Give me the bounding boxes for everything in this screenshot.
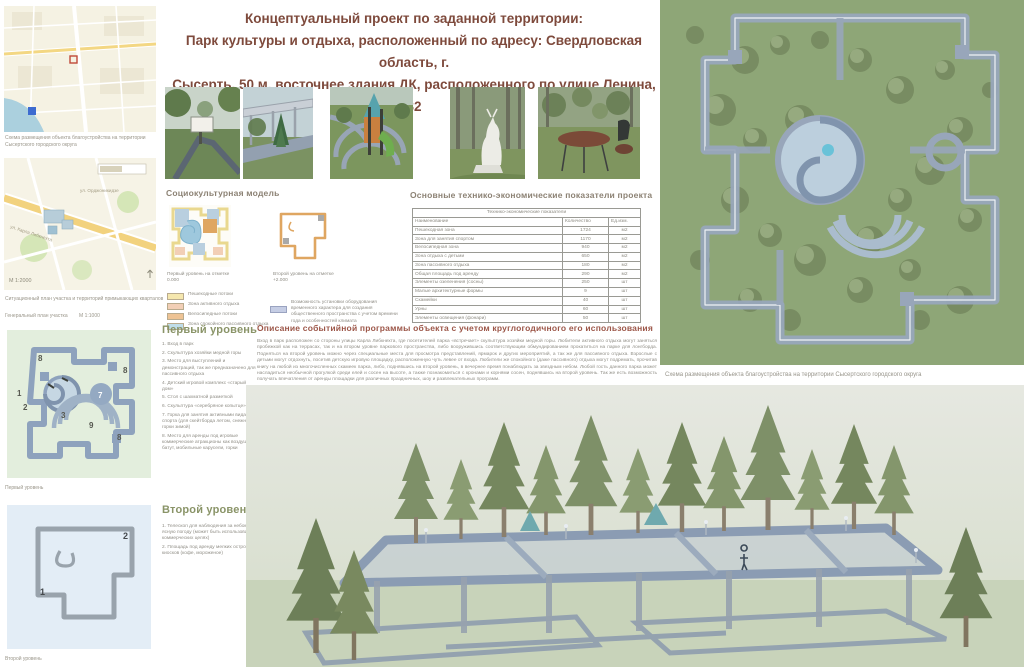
plan2-marker: 1 [40,587,45,597]
legend-swatch-pedestrian [167,293,184,300]
legend2-label: Возможность установки оборудования време… [291,300,398,325]
genplan-level1-diagram: 1 2 3 7 8 8 8 9 [4,328,154,480]
table-row: Элементы освещения (фонари)50шт [413,314,641,323]
aerial-site-render [660,0,1024,365]
plan1-marker: 3 [61,411,66,420]
model-level2-label: Второй уровень на отметке +2.000 [273,272,343,284]
plan1-marker: 9 [89,421,94,430]
genplan-scale: М 1:1000 [79,313,100,319]
tep-table: Технико-экономические показатели Наимено… [412,208,641,323]
render-table-and-chairs [538,87,640,179]
table-row: Малые архитектурные формы9шт [413,288,641,297]
table-row: Велосипедная зона940м2 [413,244,641,253]
table-row: Зона пассивного отдыха180м2 [413,261,641,270]
city-overview-map [4,6,156,132]
plan1-marker: 2 [23,403,28,412]
plan1-marker: 8 [117,433,122,442]
list-item: 8. Место для аренды под игровые коммерче… [162,434,257,453]
table-row: Элементы озеленения (сосны)250шт [413,279,641,288]
plan1-marker: 8 [38,354,43,363]
overview-map-caption: Схема размещения объекта благоустройства… [5,135,153,148]
list-item: 5. Стол с шахматной разметкой [162,395,257,401]
tep-col: Количество [563,217,609,226]
list-item: 7. Горка для занятия активными видами сп… [162,413,257,432]
list-item: 4. Детский игровой комплекс «старый дом» [162,381,257,393]
tep-heading: Основные технико-экономические показател… [410,190,652,200]
list-item: 6. Скульптура «серебряное копытце» [162,404,257,410]
table-row: Общая площадь под аренду290м2 [413,270,641,279]
poster-board: Концептуальный проект по заданной террит… [0,0,1024,667]
title-line-2: Парк культуры и отдыха, расположенный по… [166,30,662,74]
model-level1-diagram [167,203,233,269]
plan2-caption: Второй уровень [5,656,42,663]
model-level2-diagram [273,208,333,268]
legend-swatch-bicycle [167,313,184,320]
table-row: Урны60шт [413,305,641,314]
legend-label: Зона активного отдыха [188,302,239,308]
render-deer-sculpture [450,87,525,179]
level2-list-heading: Второй уровень [162,504,253,516]
render-second-level-walkway [243,87,313,179]
plan2-marker: 2 [123,531,128,541]
aerial-render-caption: Схема размещения объекта благоустройства… [665,372,1021,378]
table-row: Пешеходная зона1724м2 [413,226,641,235]
legend-swatch-active [167,303,184,310]
genplan-level2-diagram: 1 2 [4,503,154,653]
description-body: Вход в парк расположен со стороны улицы … [257,339,657,384]
legend-label: Пешеходные потоки [188,292,233,298]
table-row: Зона отдыха с детьми650м2 [413,252,641,261]
tep-col: Ед.изм. [609,217,641,226]
render-park-entrance [165,87,240,179]
perspective-park-render [246,385,1024,667]
table-row: Скамейки40шт [413,296,641,305]
level2-list: 1. Телескоп для наблюдения за небом в яс… [162,524,257,560]
list-item: 2. Площадь под аренду мелких островков к… [162,545,257,557]
plan1-marker: 7 [98,391,103,400]
title-line-1: Концептуальный проект по заданной террит… [166,8,662,30]
level1-list: 1. Вход в парк 2. Скульптура хозяйки мед… [162,342,257,455]
legend-label: Велосипедные потоки [188,312,237,318]
legend-swatch-temporary [270,306,287,313]
list-item: 1. Телескоп для наблюдения за небом в яс… [162,524,257,543]
table-row: Зона для занятия спортом1170м2 [413,235,641,244]
plan1-marker: 8 [123,366,128,375]
sociocultural-heading: Социокультурная модель [166,188,280,198]
description-heading: Описание событийной программы объекта с … [257,323,653,333]
list-item: 2. Скульптура хозяйки медной горы [162,351,257,357]
plan1-caption: Первый уровень [5,485,43,492]
street-label-1: ул. Орджоникидзе [80,188,119,193]
map-scale-label: М 1:2000 [9,278,31,284]
genplan-label: Генеральный план участка [5,313,68,319]
plan1-marker: 1 [17,389,22,398]
list-item: 1. Вход в парк [162,342,257,348]
tep-col: Наименование [413,217,563,226]
render-playground [330,87,413,179]
genplan-caption: Генеральный план участка М 1:1000 [5,313,155,320]
situational-plan-map: ул. Орджоникидзе ул. Карла Либкнехта М 1… [4,158,156,290]
level1-list-heading: Первый уровень [162,324,257,336]
model-level1-label: Первый уровень на отметке 0.000 [167,272,237,284]
map-marker-icon [28,107,36,115]
situational-plan-caption: Ситуационный план участка и территорий п… [5,296,155,303]
list-item: 3. Место для выступлений и демонстраций,… [162,359,257,378]
tep-band: Технико-экономические показатели [413,209,641,218]
